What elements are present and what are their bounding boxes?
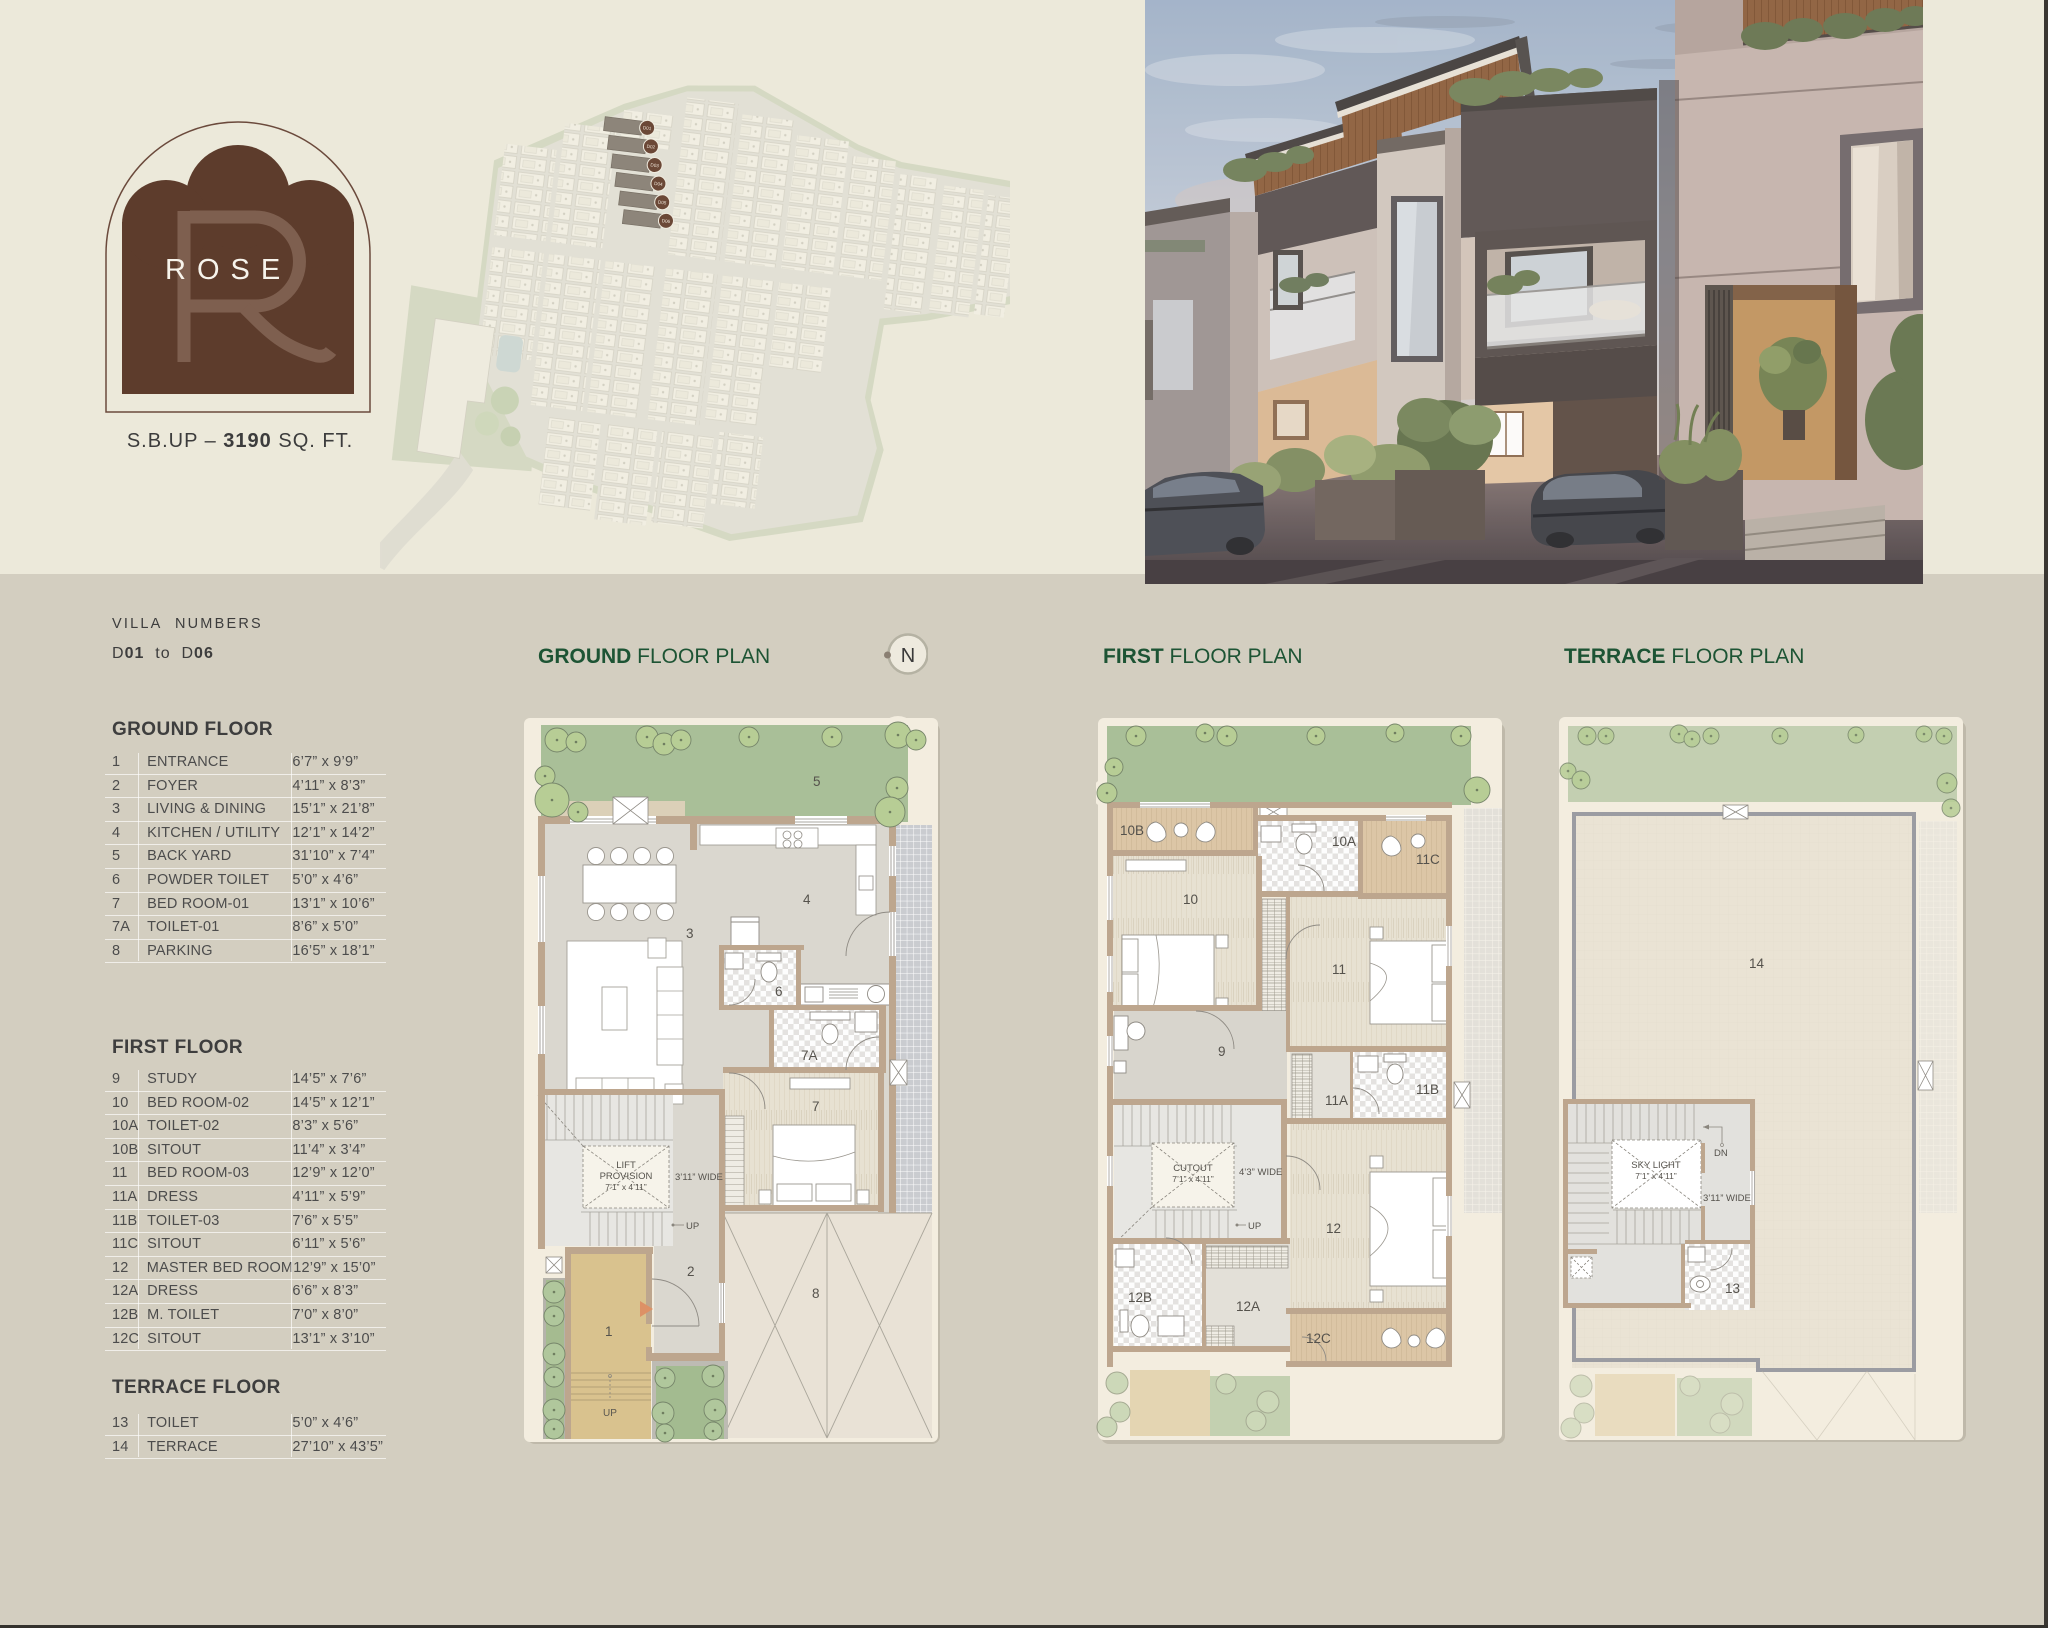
svg-text:11C: 11C <box>1416 852 1440 867</box>
svg-text:D04: D04 <box>654 181 663 187</box>
svg-text:12C: 12C <box>1306 1331 1331 1346</box>
svg-text:UP: UP <box>686 1221 699 1232</box>
svg-text:UP: UP <box>1248 1221 1261 1232</box>
svg-text:2: 2 <box>687 1264 695 1279</box>
svg-text:1: 1 <box>605 1324 613 1339</box>
svg-text:12A: 12A <box>1236 1299 1260 1314</box>
svg-text:7’1” x 4’11”: 7’1” x 4’11” <box>605 1182 647 1192</box>
svg-text:14: 14 <box>1749 956 1765 971</box>
svg-text:7: 7 <box>812 1099 820 1114</box>
svg-text:7’1” x 4’11”: 7’1” x 4’11” <box>1635 1171 1677 1181</box>
svg-text:3: 3 <box>686 926 694 941</box>
svg-text:8: 8 <box>812 1286 820 1301</box>
svg-text:D03: D03 <box>650 162 659 168</box>
svg-text:12: 12 <box>1326 1221 1341 1236</box>
svg-text:UP: UP <box>603 1408 617 1419</box>
svg-text:D02: D02 <box>646 144 655 150</box>
svg-text:D06: D06 <box>661 218 670 224</box>
svg-text:9: 9 <box>1218 1044 1226 1059</box>
svg-text:CUTOUT: CUTOUT <box>1173 1163 1213 1174</box>
svg-text:11B: 11B <box>1416 1082 1439 1097</box>
svg-text:N: N <box>901 645 915 667</box>
svg-text:12B: 12B <box>1128 1290 1152 1305</box>
svg-text:7A: 7A <box>801 1048 818 1063</box>
svg-text:10: 10 <box>1183 892 1198 907</box>
svg-text:4: 4 <box>803 892 811 907</box>
svg-text:11A: 11A <box>1325 1093 1348 1108</box>
svg-text:D01: D01 <box>643 125 652 131</box>
svg-text:10B: 10B <box>1120 823 1144 838</box>
svg-text:4’3” WIDE: 4’3” WIDE <box>1239 1167 1282 1178</box>
svg-text:7’1” x 4’11”: 7’1” x 4’11” <box>1172 1174 1214 1184</box>
svg-text:ROSE: ROSE <box>165 254 291 286</box>
svg-text:5: 5 <box>813 774 821 789</box>
svg-text:6: 6 <box>775 984 783 999</box>
svg-text:3’11” WIDE: 3’11” WIDE <box>1703 1193 1751 1204</box>
svg-text:13: 13 <box>1725 1281 1740 1296</box>
svg-text:D05: D05 <box>658 200 667 206</box>
svg-text:LIFT: LIFT <box>616 1160 636 1171</box>
svg-text:DN: DN <box>1714 1148 1728 1159</box>
svg-text:SKY LIGHT: SKY LIGHT <box>1631 1160 1681 1171</box>
svg-text:10A: 10A <box>1332 834 1356 849</box>
svg-text:3’11” WIDE: 3’11” WIDE <box>675 1172 723 1183</box>
svg-text:11: 11 <box>1332 962 1346 977</box>
svg-text:PROVISION: PROVISION <box>600 1171 653 1182</box>
